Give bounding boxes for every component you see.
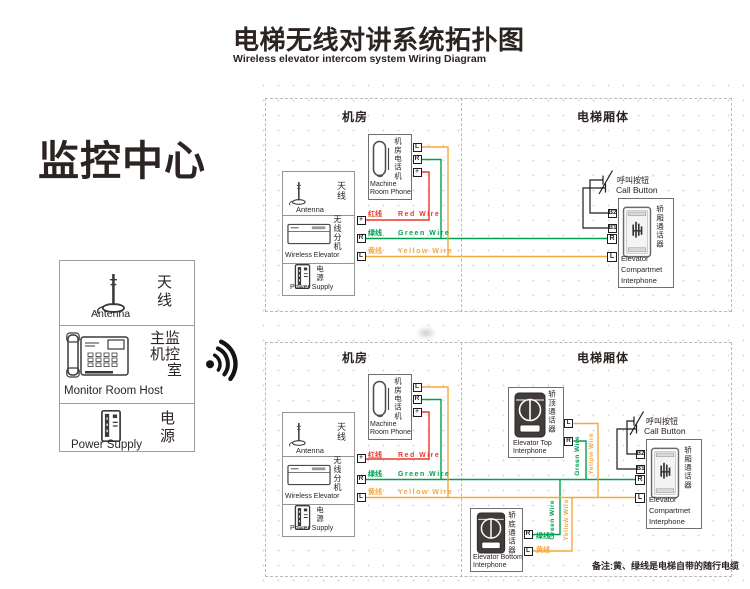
green-wire-label-zh: 绿线: [368, 471, 382, 478]
compartment-label-zh: 轿厢通话器: [656, 205, 664, 249]
yellow-wire-vertical-label: Yellow Wire: [589, 433, 596, 475]
mr-antenna-zh: 天线: [336, 422, 345, 442]
footnote: 备注:黄、绿线是电梯自带的随行电缆: [592, 559, 739, 572]
terminal-r: R: [607, 234, 617, 244]
terminal-b2: B2: [636, 450, 645, 459]
terminal-b1: B1: [608, 224, 617, 233]
divider: [283, 456, 354, 457]
bottom-interphone-zh: 轿底通话器: [508, 511, 516, 555]
compartment-en3: Interphone: [621, 276, 662, 287]
green-wire-vertical-label: Green Wire: [575, 436, 582, 476]
terminal-l: L: [524, 547, 533, 556]
wireless-extension-icon: [287, 222, 331, 246]
terminal-r: R: [524, 530, 533, 539]
phone-label-zh: 机房电话机: [394, 377, 402, 421]
phone-label-en2: Room Phone: [370, 429, 411, 437]
yellow-wire-vertical-label: Yellow Wire: [564, 499, 571, 541]
mr-wireless-zh: 无线分机: [333, 456, 341, 492]
mr-power-zh: 电源: [316, 265, 324, 282]
terminal-r: R: [635, 475, 645, 485]
green-wire-short-label: 绿线: [536, 531, 550, 541]
mr-power-en: Power Supply: [290, 525, 333, 532]
antenna-icon: [288, 418, 308, 448]
compartment-en2: Compartmet: [649, 506, 690, 517]
mr-power-zh: 电源: [316, 506, 324, 523]
terminal-plus: +: [357, 216, 366, 225]
handset-icon: [371, 139, 391, 179]
red-wire-label-zh: 红线: [368, 452, 382, 459]
phone-terminal-plus: +: [413, 168, 422, 177]
terminal-l: L: [564, 419, 573, 428]
yellow-wire-label-en: Yellow Wire: [398, 489, 453, 496]
mr-antenna-en: Antenna: [296, 205, 324, 214]
phone-terminal-r: R: [413, 155, 422, 164]
red-wire-label-en: Red Wire: [398, 452, 440, 459]
antenna-icon: [288, 177, 308, 207]
yellow-wire-label-zh: 黄线: [368, 248, 382, 255]
terminal-r: R: [357, 475, 366, 484]
compartment-en1: Elevator: [649, 495, 690, 506]
top-interphone-en1: Elevator Top: [513, 440, 552, 448]
phone-label-en1: Machine: [370, 181, 411, 189]
compartment-en3: Interphone: [649, 517, 690, 528]
terminal-l: L: [357, 252, 366, 261]
phone-label-en2: Room Phone: [370, 189, 411, 197]
top-interphone-zh: 轿顶通话器: [548, 390, 556, 434]
phone-terminal-plus: +: [413, 408, 422, 417]
call-button-label-en: Call Button: [644, 426, 686, 436]
red-wire-label-en: Red Wire: [398, 211, 440, 218]
intercom-icon: [622, 206, 652, 258]
terminal-r: R: [564, 437, 573, 446]
top-interphone-en2: Interphone: [513, 448, 552, 456]
mr-wireless-en: Wireless Elevator: [285, 493, 339, 500]
handset-icon: [371, 379, 391, 419]
wireless-extension-icon: [287, 463, 331, 487]
compartment-en2: Compartmet: [621, 265, 662, 276]
terminal-l: L: [635, 493, 645, 503]
phone-terminal-r: R: [413, 395, 422, 404]
call-button-label-en: Call Button: [616, 185, 658, 195]
yellow-wire-label-zh: 黄线: [368, 489, 382, 496]
terminal-plus: +: [357, 454, 366, 463]
mr-antenna-zh: 天线: [336, 181, 345, 201]
speaker-icon: [476, 512, 506, 554]
phone-label-zh: 机房电话机: [394, 137, 402, 181]
terminal-b2: B2: [608, 209, 617, 218]
terminal-l: L: [357, 493, 366, 502]
bottom-interphone-en2: Interphone: [473, 562, 523, 570]
green-wire-label-en: Green Wire: [398, 230, 450, 237]
green-wire-label-en: Green Wire: [398, 471, 450, 478]
speaker-icon: [514, 392, 546, 438]
wiring-diagram-page: 电梯无线对讲系统拓扑图 Wireless elevator intercom s…: [0, 0, 750, 589]
terminal-l: L: [607, 252, 617, 262]
phone-terminal-l: L: [413, 383, 422, 392]
mr-wireless-en: Wireless Elevator: [285, 252, 339, 259]
green-wire-label-zh: 绿线: [368, 230, 382, 237]
yellow-wire-label-en: Yellow Wire: [398, 248, 453, 255]
compartment-en1: Elevator: [621, 254, 662, 265]
compartment-label-zh: 轿厢通话器: [684, 446, 692, 490]
mr-wireless-zh: 无线分机: [333, 215, 341, 251]
terminal-r: R: [357, 234, 366, 243]
phone-terminal-l: L: [413, 143, 422, 152]
phone-label-en1: Machine: [370, 421, 411, 429]
yellow-wire-short-label: 黄线: [536, 545, 550, 555]
mr-power-en: Power Supply: [290, 284, 333, 291]
red-wire-label-zh: 红线: [368, 211, 382, 218]
divider: [283, 215, 354, 216]
intercom-icon: [650, 447, 680, 499]
mr-antenna-en: Antenna: [296, 446, 324, 455]
bottom-interphone-en1: Elevator Bottom: [473, 554, 523, 562]
green-wire-vertical-label: Green Wire: [550, 500, 557, 540]
terminal-b1: B1: [636, 465, 645, 474]
